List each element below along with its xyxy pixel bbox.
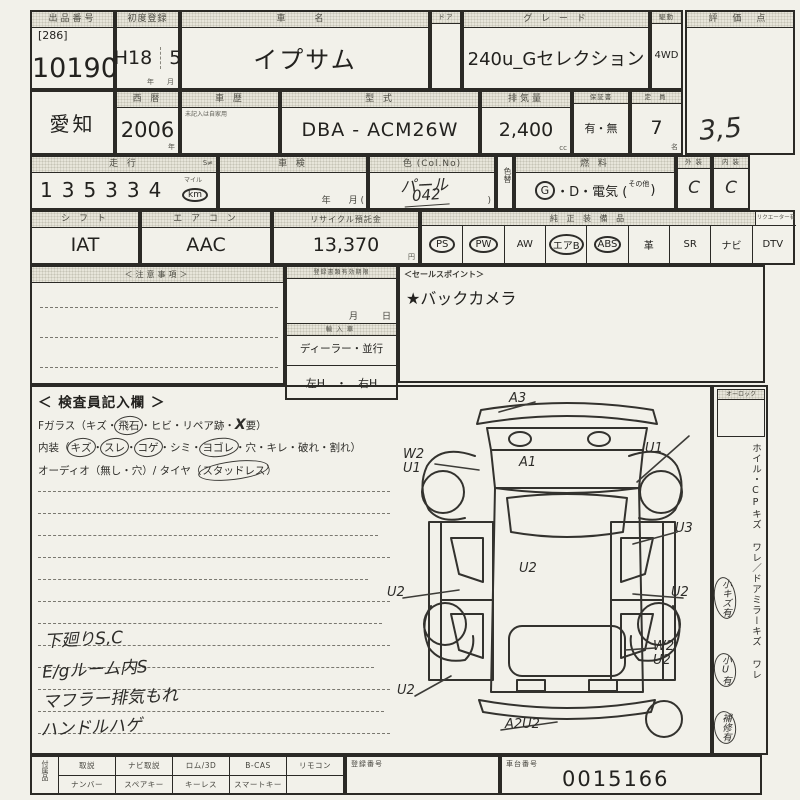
glass-stone-chip-circled: 飛石 [117, 418, 140, 433]
score-cell: 評 価 点 3,5 [685, 10, 795, 155]
interior-condition-line: 内装（キズ・スレ・コゲ・シミ・ヨゴレ・穴・キレ・破れ・割れ） [38, 440, 361, 455]
shaken-cell: 車 検 年 月 ( [218, 155, 368, 210]
glass-text: 要） [246, 420, 267, 432]
year-cell: 西 暦 2006 年 [115, 90, 180, 155]
equipment-cell: 純 正 装 備 品 リクエーター有 PS PW AW エアB ABS 革 SR … [420, 210, 795, 265]
model-code-value: DBA - ACM26W [282, 107, 478, 153]
capacity-cell: 定 員 7 名 [630, 90, 683, 155]
color-close-paren: ) [487, 196, 491, 206]
score-label: 評 価 点 [687, 12, 793, 28]
accessories-row-1: 取説 ナビ取説 ロム/3D B-CAS リモコン [59, 757, 343, 776]
exterior-value: C [678, 168, 710, 208]
equipment-airbag-circled: エアB [549, 234, 584, 255]
damage-mark-hood: A1 [519, 456, 536, 470]
damage-mark-right-side: U3 [675, 522, 693, 536]
car-outline-drawing [387, 392, 717, 752]
first-reg-month-unit: 月 [167, 77, 174, 87]
sales-point-label: ＜セールスポイント＞ [404, 269, 484, 280]
interior-dirt-circled: ヨゴレ [202, 440, 236, 455]
sidebar-section: オーロック ホイル・CPキズ ワレ／ドアミラーキズ ワレ 小キズ有 小U有 補修… [712, 385, 768, 755]
inspector-dash-line [38, 491, 390, 492]
displacement-cell: 排気量 2,400 cc [480, 90, 572, 155]
model-code-label: 型 式 [282, 92, 478, 108]
accessories-section: 付属品 取説 ナビ取説 ロム/3D B-CAS リモコン ナンバー スペアキー … [30, 755, 345, 795]
recycle-deposit-cell: リサイクル預託金 13,370 円 [272, 210, 420, 265]
interior-grade-cell: 内 装 C [712, 155, 750, 210]
empty-grade-circle [645, 700, 683, 738]
first-reg-era: H18 [114, 47, 152, 69]
inspector-dash-line [38, 535, 378, 536]
glass-text: Fガラス（キズ・ [38, 420, 117, 432]
caution-dash-line [40, 367, 278, 368]
recycle-label: リサイクル預託金 [274, 212, 418, 228]
equipment-item-airbag: エアB [545, 225, 586, 263]
car-name: イプサム [182, 27, 428, 88]
shift-value: IAT [32, 227, 138, 263]
aircon-label: エ ア コ ン [142, 212, 270, 228]
first-registration-label: 初度登録 [117, 12, 178, 28]
drive-value: 4WD [652, 23, 681, 88]
equipment-pw-circled: PW [469, 236, 499, 253]
mileage-cell: 走 行 S≠ 135334 マイル km [30, 155, 218, 210]
studless-circled: スタッドレス [201, 463, 266, 478]
dtv-note: リクエーター有 [755, 212, 796, 226]
equipment-item-navi: ナビ [710, 225, 751, 263]
accessory-keyless: キーレス [172, 776, 229, 794]
audio-text: オーディオ（無し・穴）/ タイヤ（ [38, 465, 201, 477]
color-change-label: 色替 [502, 167, 513, 183]
history-label: 車 歴 [182, 92, 278, 108]
accessory-spare-key: スペアキー [115, 776, 172, 794]
equipment-navi: ナビ [721, 237, 741, 252]
lot-number: 10190 [32, 53, 113, 84]
year-label: 西 暦 [117, 92, 178, 108]
fuel-close: ) [650, 183, 655, 198]
equipment-sr: SR [683, 239, 696, 250]
drive-cell: 駆動 4WD [650, 10, 683, 90]
warranty-value: 有・無 [574, 103, 628, 153]
shaken-units: 年 月 ( [322, 193, 364, 206]
chassis-number-cell: 車台番号 0015166 [500, 755, 762, 795]
equipment-item-sr: SR [669, 225, 710, 263]
interior-wear-circled: スレ [103, 440, 126, 455]
audio-tire-line: オーディオ（無し・穴）/ タイヤ（スタッドレス） [38, 463, 277, 478]
door-label: ドア [432, 12, 460, 24]
grade-cell: グ レ ー ド 240u_Gセレクション [462, 10, 650, 90]
inspector-dash-line [38, 579, 368, 580]
damage-mark-text: U2 [653, 654, 674, 668]
documents-cell: 登録書類有効期限 月 日 輸入車 ディーラー・並行 左H ・ 右H [285, 265, 398, 400]
inspector-dash-line [38, 513, 390, 514]
first-reg-year-unit: 年 [147, 77, 154, 87]
interior-burn-circled: コゲ [137, 440, 160, 455]
accessory-bcas: B-CAS [229, 757, 286, 775]
accessory-empty [286, 776, 343, 794]
hand-note-underbody: 下廻りS,C [43, 623, 123, 652]
equipment-item-aw: AW [504, 225, 545, 263]
auction-sheet: 出品番号 [286] 10190 初度登録 H18 5 年 月 車 名 イプサム… [0, 0, 800, 800]
damage-mark-left-door: U2 [387, 586, 405, 600]
hand-note-steering: ハンドルハゲ [39, 710, 142, 740]
inspector-dash-line [38, 601, 390, 602]
accessory-rom-3d: ロム/3D [172, 757, 229, 775]
equipment-item-ps: PS [422, 225, 462, 263]
equipment-item-abs: ABS [586, 225, 627, 263]
damage-mark-text: U1 [403, 462, 424, 476]
lock-label: オーロック [718, 390, 764, 400]
equipment-aw: AW [517, 239, 533, 250]
displacement-label: 排気量 [482, 92, 570, 108]
caution-notes-label: ＜注意事項＞ [32, 267, 283, 283]
small-scratch-tag-circled: 小キズ有 [717, 579, 733, 617]
exterior-grade-cell: 外 装 C [676, 155, 712, 210]
displacement-unit: cc [559, 144, 567, 152]
interior-value: C [714, 168, 748, 208]
recycle-unit: 円 [408, 252, 415, 262]
region-cell: 愛知 [30, 90, 115, 155]
warranty-cell: 保証書 有・無 [572, 90, 630, 155]
documents-month: 月 [349, 309, 358, 322]
caution-notes-cell: ＜注意事項＞ [30, 265, 285, 385]
color-change-cell: 色替 [496, 155, 514, 210]
small-dent-tag-circled: 小U有 [717, 655, 733, 685]
score-value: 3,5 [698, 112, 743, 147]
door-cell: ドア [430, 10, 462, 90]
inspector-dash-line [38, 711, 384, 712]
import-type: ディーラー・並行 [287, 341, 396, 356]
accessories-label: 付属品 [40, 760, 50, 781]
accessories-grid: 取説 ナビ取説 ロム/3D B-CAS リモコン ナンバー スペアキー キーレス… [58, 757, 343, 793]
lock-check-box: オーロック [717, 389, 765, 437]
documents-day: 日 [382, 309, 391, 322]
damage-mark-right-rear-fender: W2 U2 [653, 640, 674, 667]
color-code: 042 [403, 184, 449, 207]
mirror-scratch-text: ドアミラーキズ ワレ [750, 574, 761, 681]
sales-point-value: ★バックカメラ [406, 285, 516, 309]
shift-cell: シ フ ト IAT [30, 210, 140, 265]
first-registration-cell: 初度登録 H18 5 年 月 [115, 10, 180, 90]
lot-bracket: [286] [38, 29, 68, 42]
shaken-label: 車 検 [220, 157, 366, 173]
mileage-label: 走 行 [32, 157, 216, 173]
damage-mark-left-rear-fender: U2 [397, 684, 415, 698]
equipment-ps-circled: PS [429, 236, 455, 253]
chassis-number-label: 車台番号 [506, 759, 538, 769]
damage-mark-right-door: U2 [671, 586, 689, 600]
inspector-dash-line [38, 557, 390, 558]
capacity-unit: 名 [671, 142, 678, 152]
registration-number-cell: 登録番号 [345, 755, 500, 795]
fuel-gas-circled: G [535, 181, 556, 200]
equipment-leather: 革 [644, 237, 654, 252]
divider [287, 365, 396, 366]
inspector-title: ＜ 検査員記入欄 ＞ [38, 391, 165, 411]
accessories-row-2: ナンバー スペアキー キーレス スマートキー [59, 776, 343, 794]
car-name-cell: 車 名 イプサム [180, 10, 430, 90]
interior-text: 内装（ [38, 442, 70, 454]
hand-note-muffler: マフラー排気もれ [41, 680, 178, 712]
fuel-cell: 燃 料 G ・D・電気 ( その他 ) [514, 155, 676, 210]
front-glass-line: Fガラス（キズ・飛石・ヒビ・リペア跡・X要） [38, 417, 267, 433]
model-code-cell: 型 式 DBA - ACM26W [280, 90, 480, 155]
chassis-number-value: 0015166 [562, 767, 670, 791]
documents-validity-label: 登録書類有効期限 [287, 267, 396, 279]
interior-text: ・穴・キレ・破れ・割れ） [235, 442, 361, 454]
equipment-dtv: DTV [762, 239, 783, 250]
history-note: 未記入は自家用 [185, 109, 227, 118]
registration-number-label: 登録番号 [351, 759, 383, 769]
history-cell: 車 歴 未記入は自家用 [180, 90, 280, 155]
accessory-remote: リモコン [286, 757, 343, 775]
accessory-number-plate: ナンバー [59, 776, 115, 794]
fuel-label: 燃 料 [516, 157, 674, 173]
equipment-item-dtv: DTV [752, 225, 793, 263]
mileage-unit: km [182, 188, 208, 202]
equipment-item-pw: PW [462, 225, 503, 263]
accessory-smart-key: スマートキー [229, 776, 286, 794]
aircon-value: AAC [142, 227, 270, 263]
inspector-section: ＜ 検査員記入欄 ＞ Fガラス（キズ・飛石・ヒビ・リペア跡・X要） 内装（キズ・… [30, 385, 712, 755]
import-car-label: 輸入車 [287, 323, 396, 336]
car-name-label: 車 名 [182, 12, 428, 28]
equipment-item-leather: 革 [628, 225, 669, 263]
fuel-other: その他 [628, 179, 649, 189]
damage-mark-text: W2 [403, 448, 424, 462]
fuel-rest: ・D・電気 ( [556, 181, 627, 200]
accessory-navi-manual: ナビ取説 [115, 757, 172, 775]
lot-number-label: 出品番号 [32, 12, 113, 28]
first-reg-month: 5 [160, 47, 181, 69]
car-damage-diagram: A3 W2 U1 A1 U1 U3 U2 U2 U2 W2 U2 U2 A2U2 [387, 392, 717, 752]
region-value: 愛知 [32, 92, 113, 153]
equipment-items: PS PW AW エアB ABS 革 SR ナビ DTV [422, 225, 793, 263]
sidebar-damage-text: ホイル・CPキズ ワレ／ドアミラーキズ ワレ [748, 443, 762, 680]
shift-label: シ フ ト [32, 212, 138, 228]
glass-x-mark: X [235, 417, 246, 433]
glass-text: ・ヒビ・リペア跡・ [140, 420, 235, 432]
mileage-meter-mark: S≠ [203, 159, 213, 167]
equipment-abs-circled: ABS [594, 236, 622, 253]
damage-mark-roof-center: U2 [519, 562, 537, 576]
interior-text: ・シミ・ [160, 442, 202, 454]
interior-scratch-circled: キズ [70, 440, 93, 455]
grade-value: 240u_Gセレクション [464, 27, 648, 88]
caution-dash-line [40, 337, 278, 338]
damage-mark-roof: A3 [509, 392, 526, 406]
repair-tag-circled: 補修有 [717, 713, 733, 742]
fuel-value: G ・D・電気 ( その他 ) [516, 172, 674, 208]
slash: ／ [750, 563, 761, 574]
grade-label: グ レ ー ド [464, 12, 648, 28]
hand-note-engine-room: E/gルーム内S [41, 652, 148, 682]
color-cell: 色 (Col.No) パール 042 ) [368, 155, 496, 210]
displacement-value: 2,400 [482, 107, 570, 153]
damage-mark-right-front-fender: U1 [645, 442, 663, 456]
lot-number-cell: 出品番号 [286] 10190 [30, 10, 115, 90]
recycle-value: 13,370 [274, 227, 418, 263]
equipment-label: 純 正 装 備 品 [422, 212, 755, 226]
accessory-manual: 取説 [59, 757, 115, 775]
damage-mark-left-front-fender: W2 U1 [403, 448, 424, 475]
year-unit: 年 [168, 142, 175, 152]
wheel-scratch-text: ホイル・CPキズ ワレ [750, 443, 761, 563]
damage-mark-text: W2 [653, 640, 674, 654]
caution-dash-line [40, 307, 278, 308]
mileage-unit-top: マイル [184, 175, 202, 184]
aircon-cell: エ ア コ ン AAC [140, 210, 272, 265]
damage-mark-rear: A2U2 [505, 718, 540, 732]
sales-point-cell: ＜セールスポイント＞ ★バックカメラ [398, 265, 765, 383]
